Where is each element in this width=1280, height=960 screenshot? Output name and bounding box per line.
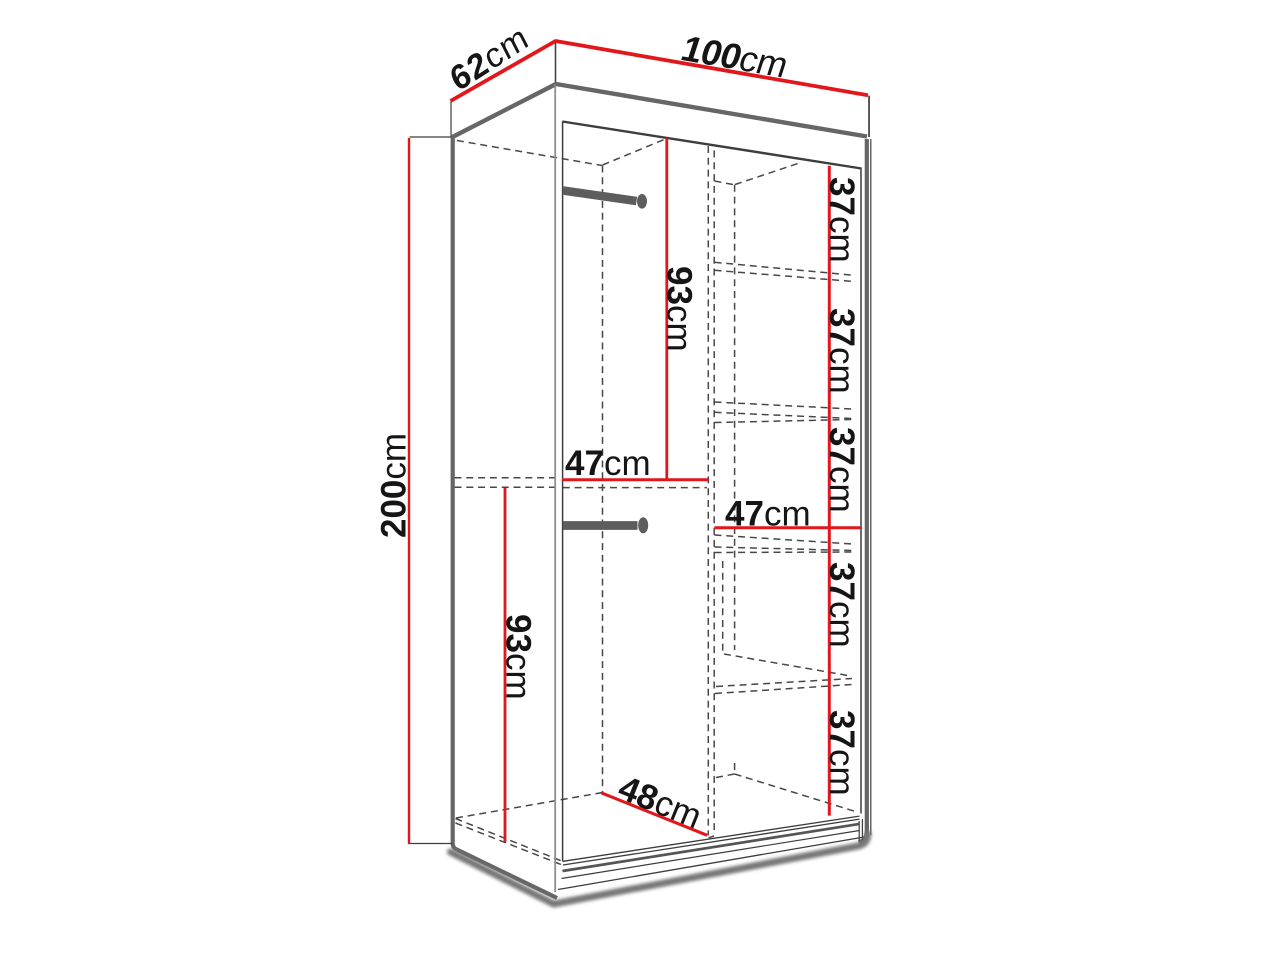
svg-text:37cm: 37cm: [822, 308, 861, 394]
svg-text:37cm: 37cm: [822, 427, 861, 513]
svg-text:200cm: 200cm: [375, 433, 414, 538]
svg-text:93cm: 93cm: [660, 266, 699, 352]
svg-text:37cm: 37cm: [822, 562, 861, 648]
svg-text:37cm: 37cm: [822, 710, 861, 796]
svg-text:93cm: 93cm: [499, 614, 538, 700]
svg-text:37cm: 37cm: [822, 177, 861, 263]
svg-text:47cm: 47cm: [565, 444, 651, 483]
svg-text:47cm: 47cm: [725, 495, 811, 534]
